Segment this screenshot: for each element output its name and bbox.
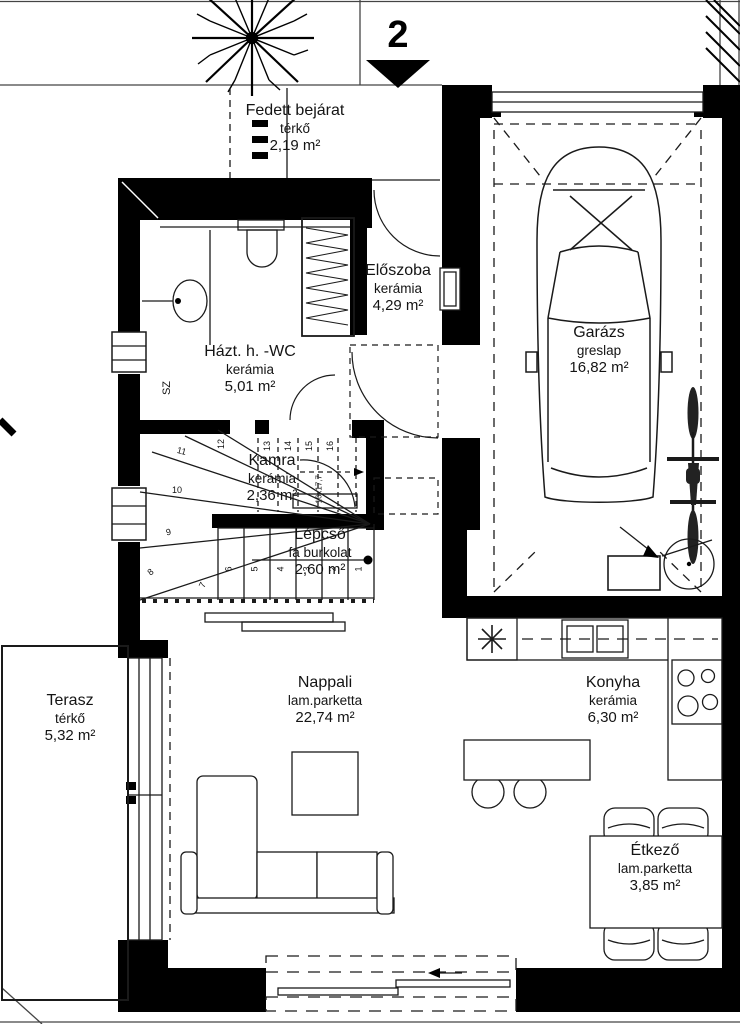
room-label-nappali: Nappali lam.parketta 22,74 m² <box>260 674 390 726</box>
level-arrow-icon <box>366 60 430 88</box>
room-label-terasz: Terasz térkő 5,32 m² <box>10 692 130 744</box>
room-label-etkezo: Étkező lam.parketta 3,85 m² <box>590 842 720 894</box>
room-name: Házt. h. -WC <box>185 343 315 362</box>
room-name: Előszoba <box>338 262 458 281</box>
stool <box>514 776 546 808</box>
toilet-cistern <box>238 220 284 230</box>
room-area: 6,30 m² <box>548 709 678 727</box>
room-finish: lam.parketta <box>590 861 720 877</box>
room-name: Lépcső <box>255 526 385 545</box>
room-finish: térkő <box>10 711 130 727</box>
room-finish: fa burkolat <box>255 545 385 561</box>
fridge-star-icon <box>478 625 506 653</box>
level-marker: 2 <box>370 14 426 57</box>
coffee-table <box>292 752 358 815</box>
room-name: Fedett bejárat <box>230 102 360 121</box>
stair-step-number: 15 <box>304 441 314 451</box>
room-finish: kerámia <box>207 471 337 487</box>
sofa-symbol <box>181 776 394 914</box>
room-area: 22,74 m² <box>260 709 390 727</box>
room-name: Nappali <box>260 674 390 693</box>
floor-plan-canvas: 2 Fedett bejárat térkő 2,19 m² Előszoba … <box>0 0 740 1024</box>
stair-step-number: 16 <box>325 441 335 451</box>
room-area: 2,19 m² <box>230 137 360 155</box>
room-area: 5,01 m² <box>185 378 315 396</box>
room-area: 4,29 m² <box>338 297 458 315</box>
room-label-eloszoba: Előszoba kerámia 4,29 m² <box>338 262 458 314</box>
room-finish: lam.parketta <box>260 693 390 709</box>
stool <box>472 776 504 808</box>
stair-step-number: 12 <box>216 439 226 449</box>
bicycle-symbol <box>667 387 719 564</box>
room-label-kamra: Kamra kerámia 2,36 m² <box>207 452 337 504</box>
entry-door-arc <box>374 190 440 256</box>
room-area: 2,36 m² <box>207 487 337 505</box>
room-name: Kamra <box>207 452 337 471</box>
room-finish: kerámia <box>185 362 315 378</box>
room-finish: kerámia <box>338 281 458 297</box>
room-area: 5,32 m² <box>10 727 130 745</box>
room-area: 3,85 m² <box>590 877 720 895</box>
room-label-konyha: Konyha kerámia 6,30 m² <box>548 674 678 726</box>
room-area: 2,60 m² <box>255 561 385 579</box>
room-name: Konyha <box>548 674 678 693</box>
stair-step-number: 13 <box>262 441 272 451</box>
room-area: 16,82 m² <box>534 359 664 377</box>
doormat <box>242 622 345 631</box>
room-finish: greslap <box>534 343 664 359</box>
tree-icon <box>192 0 314 96</box>
room-label-fedett-bejarat: Fedett bejárat térkő 2,19 m² <box>230 102 360 154</box>
room-name: Terasz <box>10 692 130 711</box>
room-finish: kerámia <box>548 693 678 709</box>
stair-step-number: 14 <box>283 441 293 451</box>
sliding-door <box>266 956 516 1011</box>
stair-step-number: 6 <box>224 566 234 571</box>
toilet-bowl <box>247 230 277 267</box>
doormat <box>205 613 333 622</box>
shaft-label: SZ <box>161 381 173 395</box>
room-label-garazs: Garázs greslap 16,82 m² <box>534 324 664 376</box>
stair-step-number: 10 <box>172 485 182 495</box>
room-finish: térkő <box>230 121 360 137</box>
room-label-lepcso: Lépcső fa burkolat 2,60 m² <box>255 526 385 578</box>
room-name: Garázs <box>534 324 664 343</box>
room-name: Étkező <box>590 842 720 861</box>
wc-fixtures <box>142 220 350 345</box>
room-label-hazt-wc: Házt. h. -WC kerámia 5,01 m² <box>185 343 315 395</box>
island-symbol <box>464 740 590 808</box>
